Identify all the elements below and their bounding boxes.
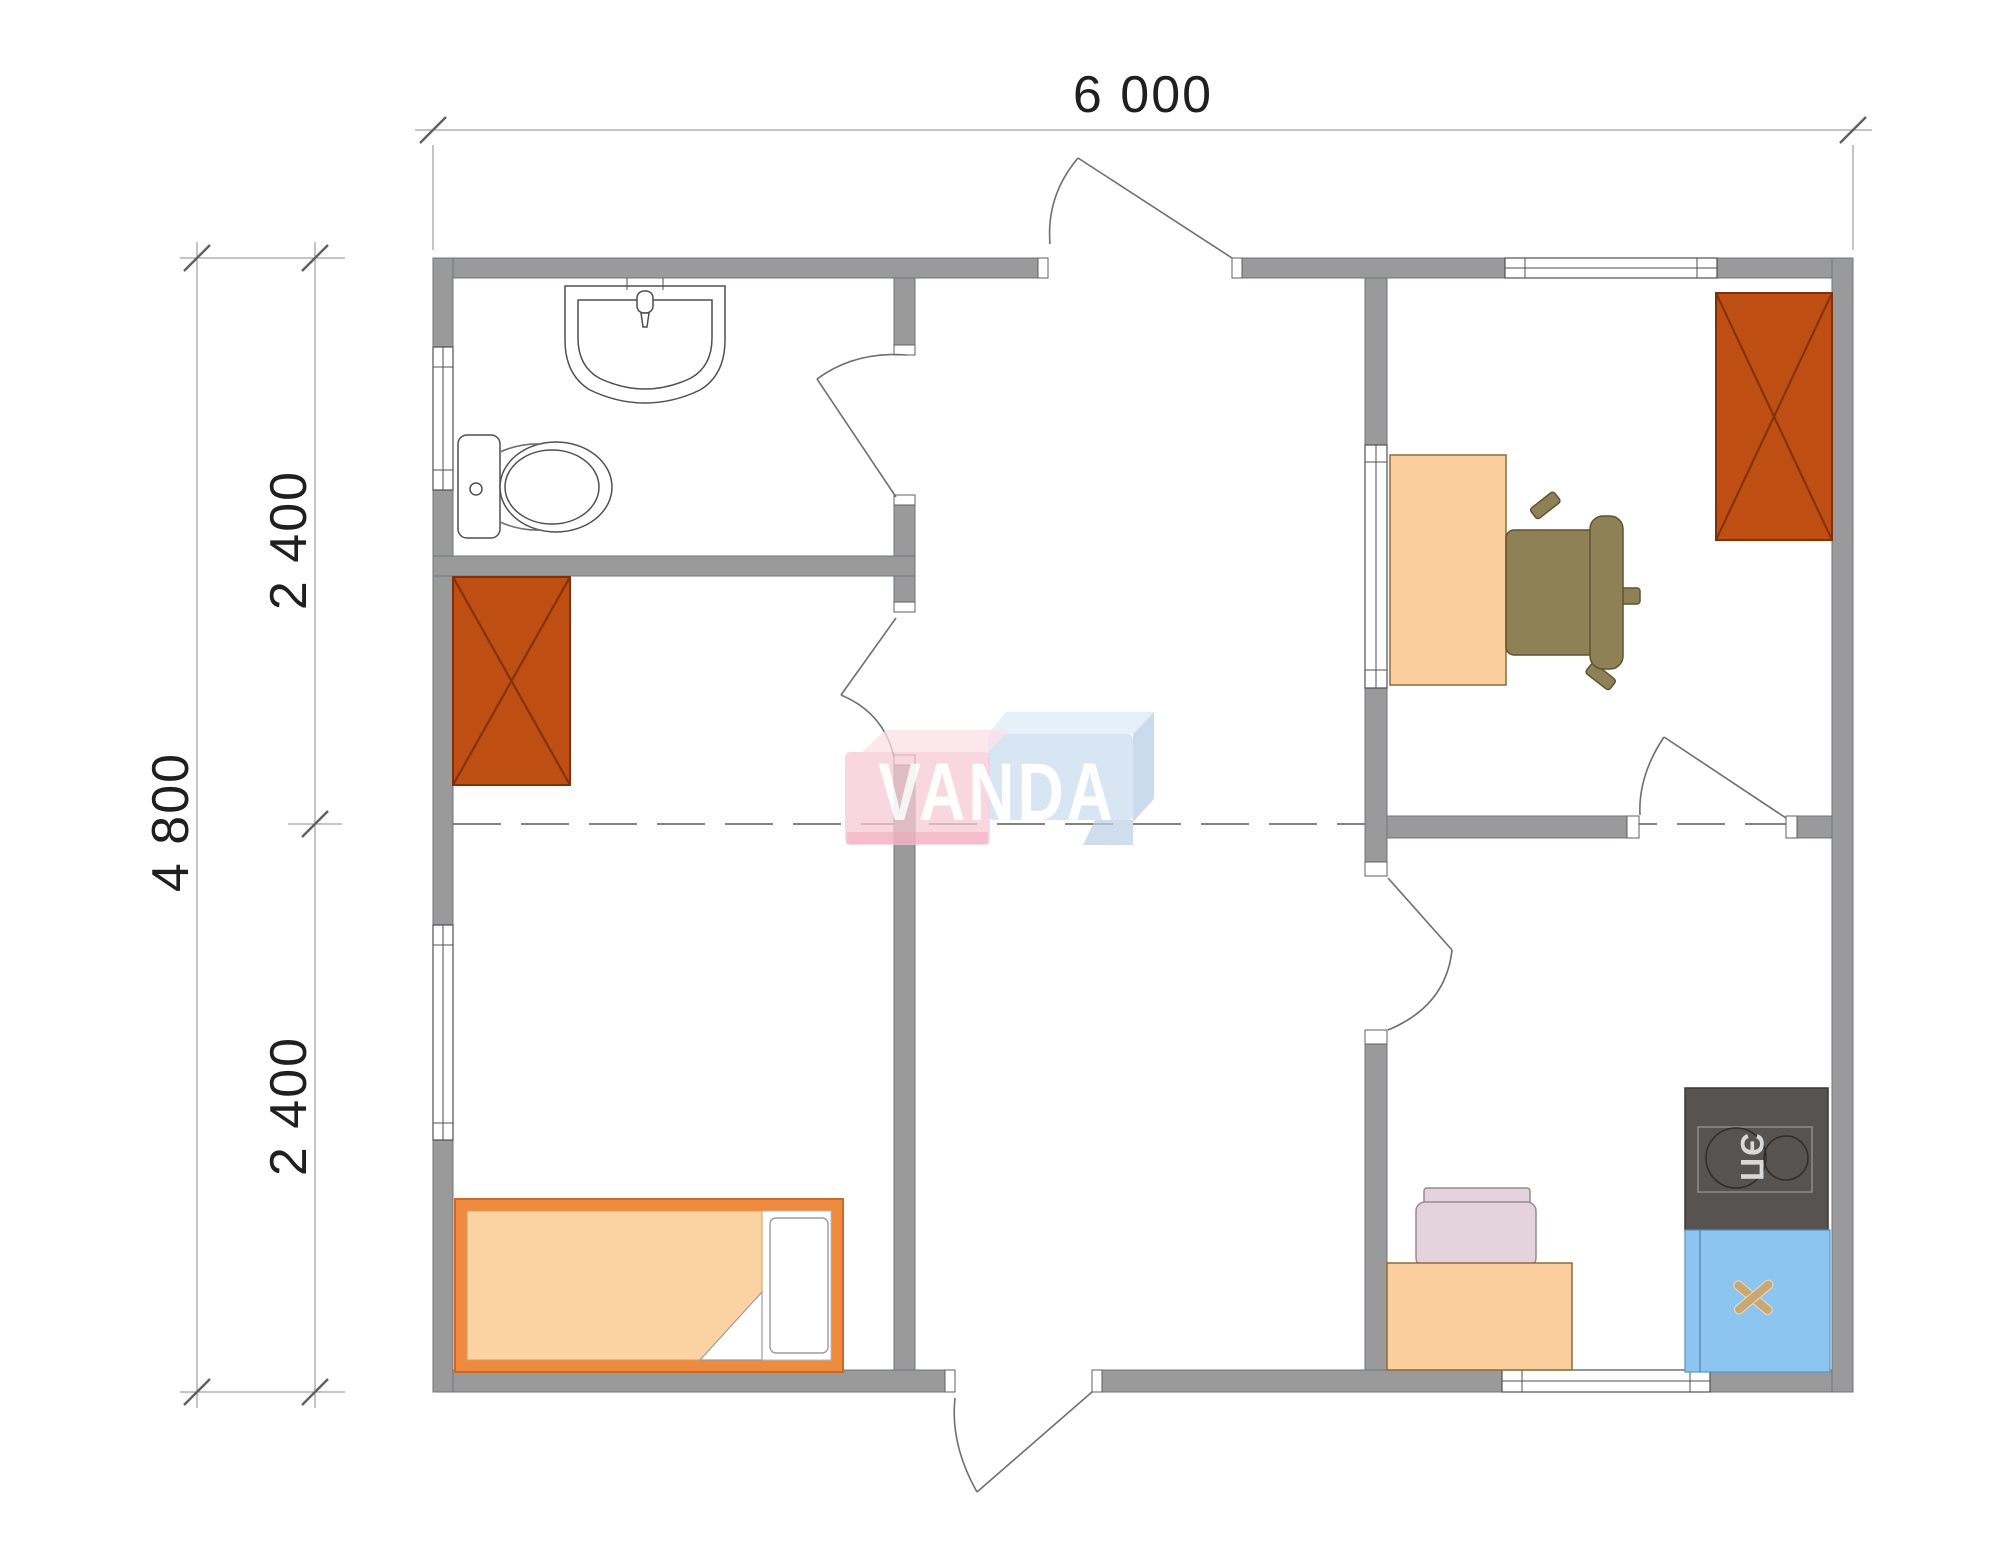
office-desk <box>1390 455 1506 685</box>
bathroom-door <box>817 355 907 498</box>
floor-plan-drawing: ЭП 6 000 4 800 2 400 2 400 <box>0 0 2000 1563</box>
stove-label: ЭП <box>1734 1133 1770 1183</box>
dim-height-upper: 2 400 <box>260 470 318 610</box>
kitchen-door <box>1388 878 1452 1030</box>
window-top-right <box>1505 258 1717 278</box>
washbasin <box>565 278 725 403</box>
terrace-door-bottom <box>954 1392 1092 1492</box>
vanda-logo-text: VANDA <box>878 745 1116 837</box>
kitchen-desk <box>1387 1263 1572 1370</box>
kitchen-chair <box>1416 1188 1536 1267</box>
entrance-door <box>1050 158 1232 258</box>
electric-stove: ЭП <box>1685 1088 1828 1230</box>
floor-plan-page: ЭП 6 000 4 800 2 400 2 400 <box>0 0 2000 1563</box>
dim-height-total: 4 800 <box>142 752 200 892</box>
vanda-watermark: VANDA <box>845 712 1154 845</box>
office-chair <box>1506 491 1640 691</box>
window-bottom-right <box>1502 1370 1710 1392</box>
dim-width: 6 000 <box>1073 66 1213 124</box>
wardrobe-left <box>453 577 570 785</box>
dim-height-lower: 2 400 <box>260 1036 318 1176</box>
bed <box>455 1199 843 1372</box>
window-hall-office <box>1365 445 1387 688</box>
wardrobe-right <box>1716 293 1832 540</box>
window-left-lower <box>433 925 453 1140</box>
window-left-upper <box>433 347 453 490</box>
office-kitchen-door <box>1640 737 1786 818</box>
toilet <box>458 435 612 538</box>
kitchen-sink <box>1685 1230 1830 1372</box>
